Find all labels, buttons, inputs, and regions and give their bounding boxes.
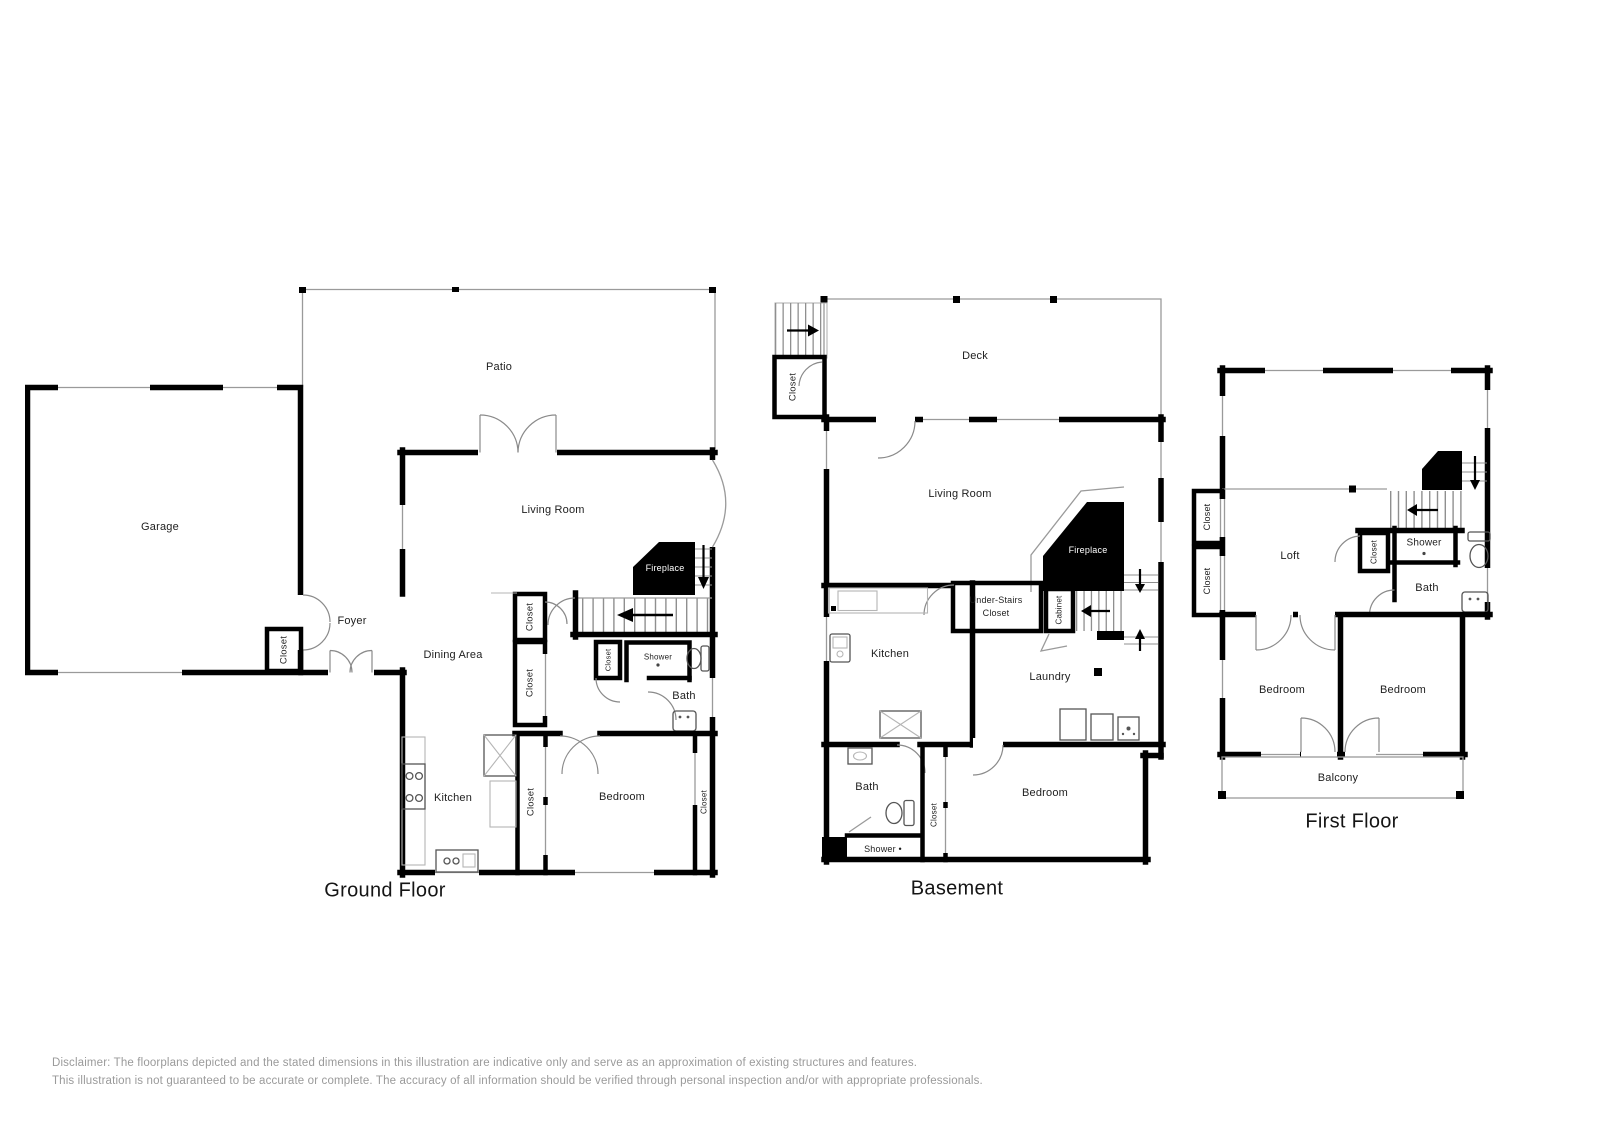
- room-label-cabinet: Cabinet: [1055, 596, 1064, 625]
- room-label-closet-hall: Closet: [930, 803, 939, 827]
- room-label-fireplace: Fireplace: [646, 563, 685, 573]
- room-label-closet-kitchen: Closet: [526, 788, 537, 816]
- room-label-patio: Patio: [486, 361, 512, 373]
- stairs-down-arrow: [1470, 456, 1480, 490]
- room-label-bedroom-left: Bedroom: [1259, 684, 1305, 696]
- first-floor-drawing: [1165, 360, 1505, 840]
- first-floor-plan: Loft Closet Closet Closet Shower Bath Be…: [1165, 360, 1505, 840]
- ground-floor-plan: Patio Garage Living Room Fireplace Foyer…: [25, 287, 740, 902]
- toilet-icon: [886, 803, 902, 824]
- floor-title-basement: Basement: [911, 878, 1003, 901]
- main-stairs: [1358, 504, 1462, 531]
- sink-icon: [673, 711, 696, 731]
- room-label-dining-area: Dining Area: [423, 649, 482, 661]
- ground-floor-drawing: [25, 287, 740, 902]
- loft-divider: [1222, 486, 1387, 493]
- room-label-shower: Shower: [1406, 538, 1441, 549]
- floor-title-first: First Floor: [1305, 811, 1398, 834]
- disclaimer-line-2: This illustration is not guaranteed to b…: [52, 1075, 983, 1087]
- room-label-closet-bedroom: Closet: [700, 790, 709, 814]
- washer-icon: [1060, 709, 1086, 740]
- stove-icon: [402, 764, 425, 809]
- room-label-balcony: Balcony: [1318, 772, 1359, 784]
- room-label-laundry: Laundry: [1029, 671, 1070, 683]
- room-label-deck: Deck: [962, 350, 988, 362]
- basement-plan: Deck Closet Living Room Fireplace Under-…: [757, 290, 1169, 905]
- room-label-bedroom-right: Bedroom: [1380, 684, 1426, 696]
- room-label-living-room: Living Room: [521, 504, 584, 516]
- room-label-garage: Garage: [141, 521, 179, 533]
- room-label-closet-bath: Closet: [604, 649, 613, 671]
- room-label-closet-foyer: Closet: [279, 636, 290, 664]
- kitchen-fixtures: [829, 588, 928, 738]
- dryer-icon: [1091, 714, 1113, 740]
- room-label-closet-upper: Closet: [1202, 504, 1212, 531]
- room-label-closet-entry: Closet: [788, 373, 799, 401]
- deck-outline: [821, 296, 1162, 417]
- room-label-kitchen: Kitchen: [871, 648, 909, 660]
- room-label-bath: Bath: [855, 781, 878, 793]
- room-label-bedroom: Bedroom: [599, 791, 645, 803]
- room-label-under-stairs-1: Under-Stairs: [970, 595, 1023, 605]
- toilet-icon: [701, 646, 709, 671]
- room-label-bath: Bath: [672, 690, 695, 702]
- room-label-bedroom: Bedroom: [1022, 787, 1068, 799]
- room-label-foyer: Foyer: [337, 615, 366, 627]
- laundry-fixtures: [1060, 668, 1139, 740]
- room-label-fireplace: Fireplace: [1069, 545, 1108, 555]
- room-label-kitchen: Kitchen: [434, 792, 472, 804]
- room-label-closet-hall-upper: Closet: [525, 603, 536, 631]
- room-label-closet-stairs: Closet: [1370, 540, 1379, 564]
- entry-closet: [775, 357, 825, 417]
- bedroom-walls: [515, 734, 715, 874]
- floor-title-ground: Ground Floor: [324, 880, 445, 903]
- main-stairs: [548, 593, 715, 637]
- fireplace: [1031, 487, 1124, 592]
- room-label-living-room: Living Room: [928, 488, 991, 500]
- room-label-bath: Bath: [1415, 582, 1438, 594]
- room-label-loft: Loft: [1280, 550, 1299, 562]
- room-label-under-stairs-2: Closet: [983, 608, 1010, 618]
- room-label-closet-lower: Closet: [1202, 568, 1212, 595]
- room-label-shower: Shower •: [864, 844, 902, 854]
- basement-drawing: [757, 290, 1169, 905]
- interior-walls: [824, 583, 1163, 860]
- deck-stairs: [775, 303, 827, 358]
- room-label-shower: Shower: [644, 653, 672, 662]
- disclaimer-line-1: Disclaimer: The floorplans depicted and …: [52, 1057, 917, 1069]
- room-label-closet-hall-lower: Closet: [525, 669, 536, 697]
- bath-sink-icon: [848, 748, 872, 764]
